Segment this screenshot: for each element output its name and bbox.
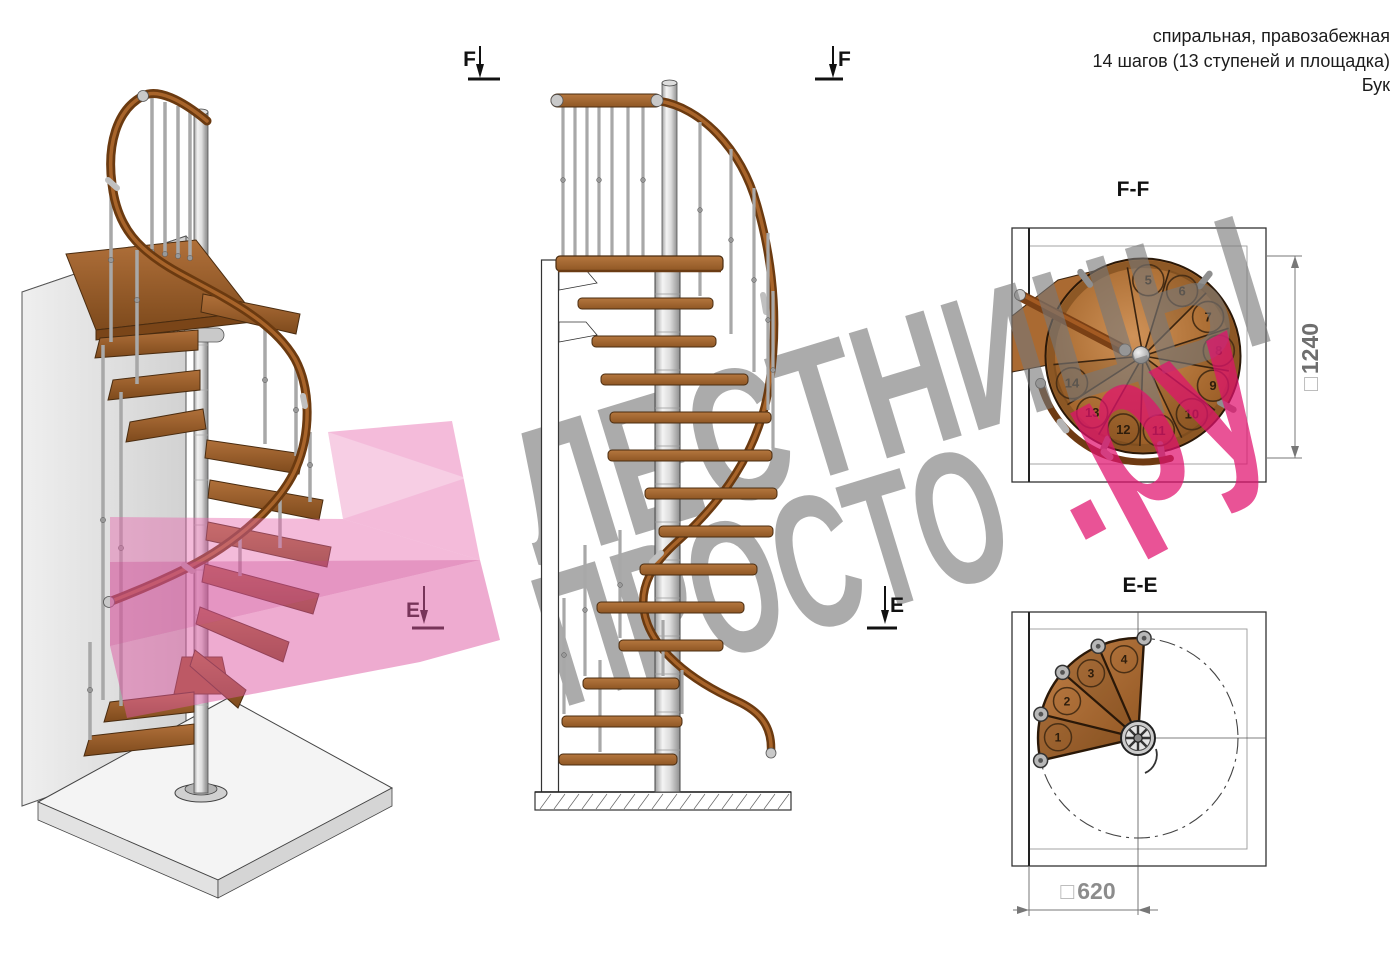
spec-material: Бук: [1092, 73, 1390, 98]
section-marker-f-right: F: [815, 46, 851, 79]
page-header: спиральная, правозабежная 14 шагов (13 с…: [1092, 24, 1390, 98]
svg-text:E: E: [890, 594, 904, 617]
elevation-floor: [535, 792, 791, 810]
spec-steps: 14 шагов (13 ступеней и площадка): [1092, 49, 1390, 74]
elevation-view: F E: [0, 0, 1400, 961]
elevation-wall: [542, 260, 598, 792]
section-marker-e-right: E: [867, 586, 904, 628]
elevation-platform: [556, 256, 723, 271]
svg-text:F: F: [838, 48, 851, 71]
spec-type: спиральная, правозабежная: [1092, 24, 1390, 49]
elevation-top-rail: [551, 94, 663, 107]
drawing-sheet: F-F: [0, 0, 1400, 961]
